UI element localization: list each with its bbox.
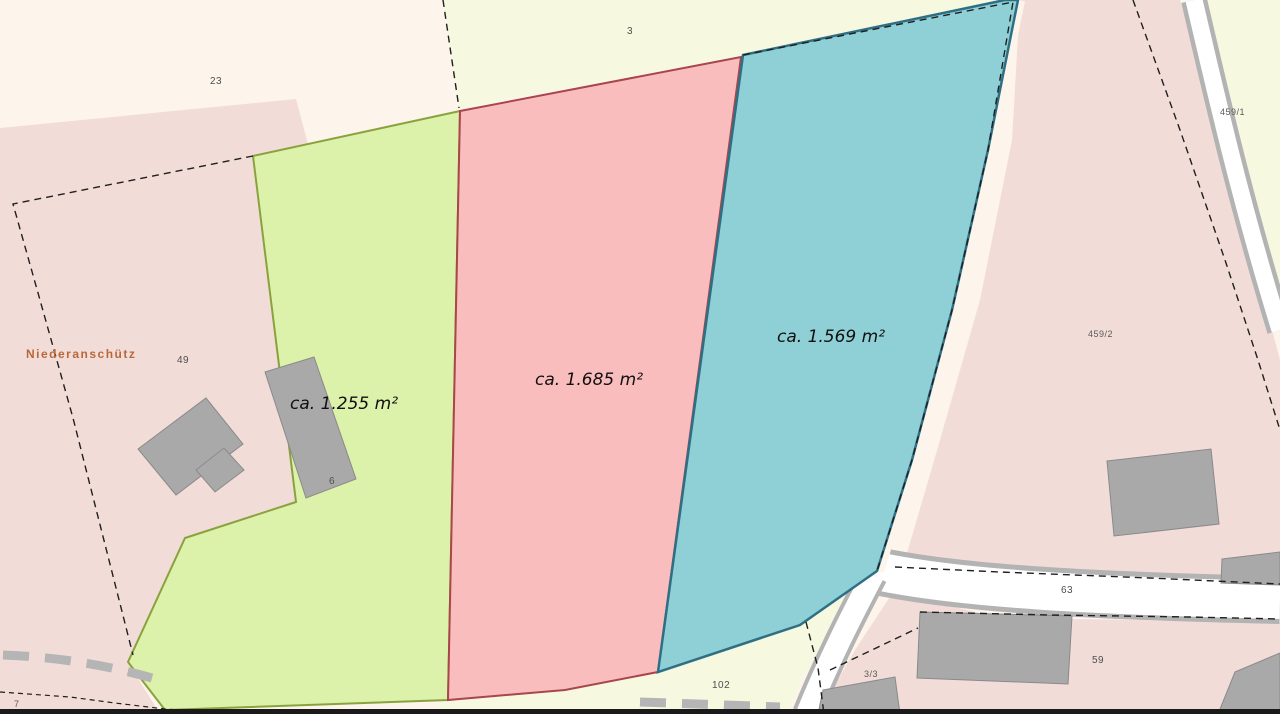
house-number-6: 6 [329, 476, 335, 487]
parcel-number-23: 23 [210, 76, 222, 87]
map-canvas [0, 0, 1280, 714]
parcel-number-7: 7 [14, 699, 20, 709]
building-bottom-large [917, 612, 1072, 684]
parcel-number-459-1: 459/1 [1220, 107, 1245, 117]
map-bottom-border [0, 709, 1280, 714]
parcel-number-3-3: 3/3 [864, 669, 878, 679]
road-number-63: 63 [1061, 585, 1073, 596]
area-label-blue: ca. 1.569 m² [777, 327, 885, 347]
parcel-number-59: 59 [1092, 655, 1104, 666]
place-label-niederanschuetz: Niederanschütz [26, 347, 136, 361]
parcel-number-459-2: 459/2 [1088, 329, 1113, 339]
cadastral-map: Niederanschütz ca. 1.255 m² ca. 1.685 m²… [0, 0, 1280, 714]
area-label-red: ca. 1.685 m² [535, 370, 643, 390]
area-label-green: ca. 1.255 m² [290, 394, 398, 414]
parcel-number-49: 49 [177, 355, 189, 366]
building-right-mid [1107, 449, 1219, 536]
parcel-number-3: 3 [627, 26, 633, 37]
parcel-number-102: 102 [712, 680, 730, 691]
